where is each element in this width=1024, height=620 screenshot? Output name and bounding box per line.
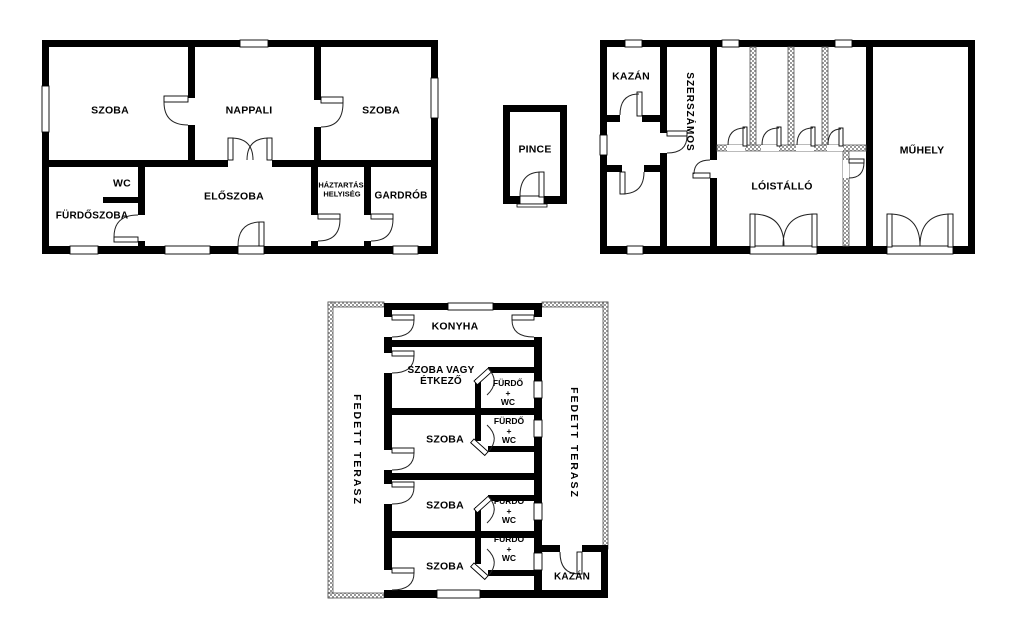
house-windows [42, 40, 438, 254]
furdo1-line3: WC [493, 398, 523, 408]
building-house [42, 40, 438, 254]
room-label-szoba-left: SZOBA [91, 106, 129, 117]
guest-door-leaves [392, 315, 582, 579]
house-walls [42, 40, 438, 254]
room-label-furdoszoba: FÜRDŐSZOBA [56, 211, 129, 222]
room-label-kazan-outbuilding: KAZÁN [612, 72, 650, 83]
room-label-szoba-a: SZOBA [426, 435, 464, 446]
haztartasi-line2: HELYISÉG [318, 190, 365, 199]
floor-plan-drawing [0, 0, 1024, 620]
building-guest-house [328, 302, 608, 598]
room-label-furdo-wc-2: FÜRDŐ + WC [494, 417, 524, 446]
room-label-wc: WC [113, 179, 131, 190]
outbuilding-door-leaves [620, 92, 953, 247]
room-label-gardrob: GARDRÓB [374, 191, 427, 202]
building-cellar [503, 105, 567, 207]
floor-plan-canvas: SZOBA NAPPALI SZOBA WC FÜRDŐSZOBA ELŐSZO… [0, 0, 1024, 620]
room-label-szerszamos: SZERSZÁMOS [683, 72, 695, 151]
room-label-furdo-wc-4: FÜRDŐ + WC [494, 535, 524, 564]
house-door-arcs [114, 102, 393, 246]
house-door-leaves [114, 96, 393, 246]
room-label-szoba-c: SZOBA [426, 562, 464, 573]
room-label-szoba-b: SZOBA [426, 501, 464, 512]
room-label-loistallo: LÓISTÁLLÓ [751, 182, 812, 193]
cellar-door [517, 172, 547, 207]
room-label-nappali: NAPPALI [226, 106, 273, 117]
room-label-konyha: KONYHA [432, 322, 479, 333]
room-label-kazan-guest: KAZÁN [554, 572, 590, 583]
room-label-furdo-wc-1: FÜRDŐ + WC [493, 379, 523, 408]
furdo2-line3: WC [494, 436, 524, 446]
furdo4-line3: WC [494, 554, 524, 564]
room-label-haztartasi-helyiseg: HÁZTARTÁSI HELYISÉG [318, 182, 365, 199]
szoba-vagy-etkezo-line2: ÉTKEZŐ [407, 376, 474, 387]
room-label-muhely: MŰHELY [900, 146, 945, 157]
room-label-furdo-wc-3: FÜRDŐ + WC [494, 497, 524, 526]
room-label-eloszoba: ELŐSZOBA [204, 192, 264, 203]
szoba-vagy-etkezo-line1: SZOBA VAGY [407, 365, 474, 376]
room-label-pince: PINCE [518, 145, 551, 156]
room-label-fedett-terasz-right: FEDETT TERASZ [568, 387, 580, 499]
room-label-szoba-right: SZOBA [362, 106, 400, 117]
furdo3-line3: WC [494, 516, 524, 526]
room-label-szoba-vagy-etkezo: SZOBA VAGY ÉTKEZŐ [407, 365, 474, 387]
room-label-fedett-terasz-left: FEDETT TERASZ [351, 394, 363, 506]
outbuilding-door-arcs [620, 94, 951, 246]
